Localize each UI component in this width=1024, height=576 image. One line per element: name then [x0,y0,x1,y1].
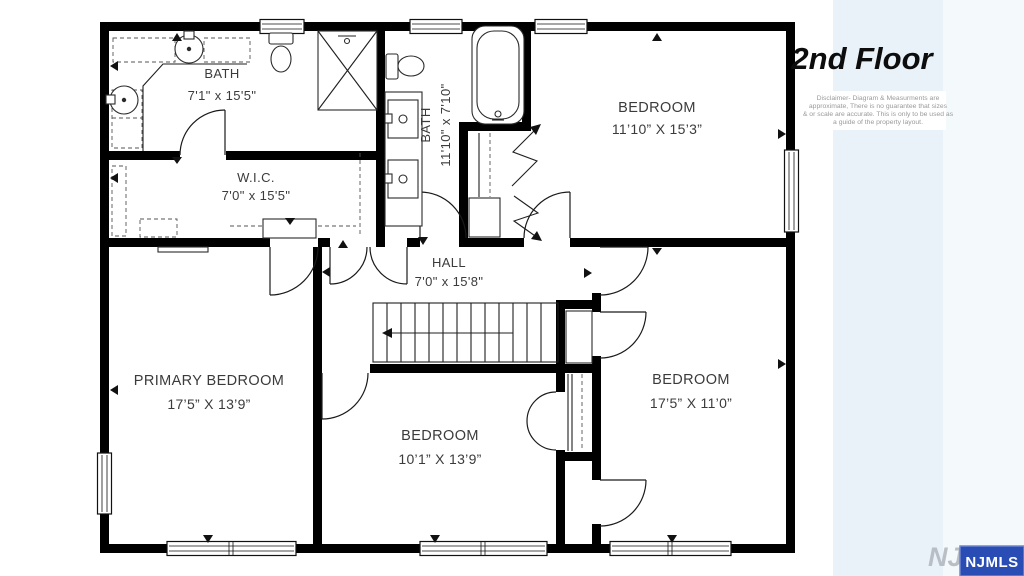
window-icon [260,20,304,34]
window-icon [785,150,799,232]
shower-icon [318,31,377,110]
window-icon [410,20,462,34]
ledge-line [158,247,208,252]
window-icon [98,453,112,514]
room-label-bedroom-bottom-right: BEDROOM 17’5” X 11’0” [650,372,732,411]
room-name: PRIMARY BEDROOM [134,373,285,389]
window-icon [167,542,296,556]
room-label-hall: HALL 7'0" x 15'8" [415,255,484,289]
door-icon [270,247,318,295]
room-label-wic: W.I.C. 7'0" x 15'5" [222,170,291,203]
accent-band [833,0,943,576]
floorplan-canvas: BATH 7'1" x 15'5" W.I.C. 7'0" x 15'5" BA… [0,0,1024,576]
bifold-door-icon [527,392,556,450]
accent-band-light [943,0,1024,576]
room-label-bedroom-top-right: BEDROOM 11’10” X 15’3” [612,100,702,137]
toilet-icon [386,54,424,79]
room-label-primary-bedroom: PRIMARY BEDROOM 17’5” X 13’9” [134,373,285,412]
door-icon [600,312,646,358]
room-name: BATH [418,107,433,142]
door-icon [600,247,648,295]
room-dims: 11’10” X 15’3” [612,121,702,137]
room-dims: 17’5” X 11’0” [650,395,732,411]
room-name: BATH [204,66,239,81]
page-title: 2nd Floor [790,41,934,76]
double-vanity [385,92,422,226]
bathtub-icon [472,26,524,124]
door-icon [600,480,646,526]
window-icon [610,542,731,556]
room-label-bath-top-left: BATH 7'1" x 15'5" [188,66,257,103]
disclaimer-line: & or scale are accurate. This is only to… [803,111,954,118]
door-icon [180,110,225,155]
room-label-bedroom-middle: BEDROOM 10’1” X 13’9” [398,428,481,467]
room-name: BEDROOM [401,428,479,444]
disclaimer: Disclaimer- Diagram & Measurments are ap… [803,91,954,130]
sink-icon [175,31,203,63]
door-icon [330,247,367,284]
window-icon [535,20,587,34]
room-name: HALL [432,255,466,270]
room-dims: 7'1" x 15'5" [188,88,257,103]
floorplan-page: BATH 7'1" x 15'5" W.I.C. 7'0" x 15'5" BA… [0,0,1024,576]
room-name: BEDROOM [652,372,730,388]
disclaimer-line: approximate, There is no guarantee that … [809,103,948,110]
door-icon [370,247,407,284]
room-label-bath-middle: BATH 11'10" x 7'10" [418,83,453,166]
room-dims: 10’1” X 13’9” [398,451,481,467]
room-dims: 7'0" x 15'5" [222,188,291,203]
njmls-logo: NJMLS NJMLS [928,542,1024,576]
sink-icon [106,86,138,114]
door-icon [322,373,368,419]
window-icon [420,542,547,556]
room-name: W.I.C. [237,170,275,185]
closet-rod [469,133,500,237]
room-dims: 17’5” X 13’9” [167,396,250,412]
room-dims: 11'10" x 7'10" [438,83,453,166]
linen-closet [566,311,592,363]
closet-rod [568,374,582,451]
opening-arrows [512,124,542,241]
room-labels: BATH 7'1" x 15'5" W.I.C. 7'0" x 15'5" BA… [134,66,732,467]
disclaimer-line: Disclaimer- Diagram & Measurments are [817,95,940,102]
staircase [373,303,558,362]
room-name: BEDROOM [618,100,696,116]
room-dims: 7'0" x 15'8" [415,274,484,289]
njmls-badge-text: NJMLS [965,554,1018,571]
toilet-icon [269,33,293,72]
disclaimer-line: a guide of the property layout. [833,119,923,126]
